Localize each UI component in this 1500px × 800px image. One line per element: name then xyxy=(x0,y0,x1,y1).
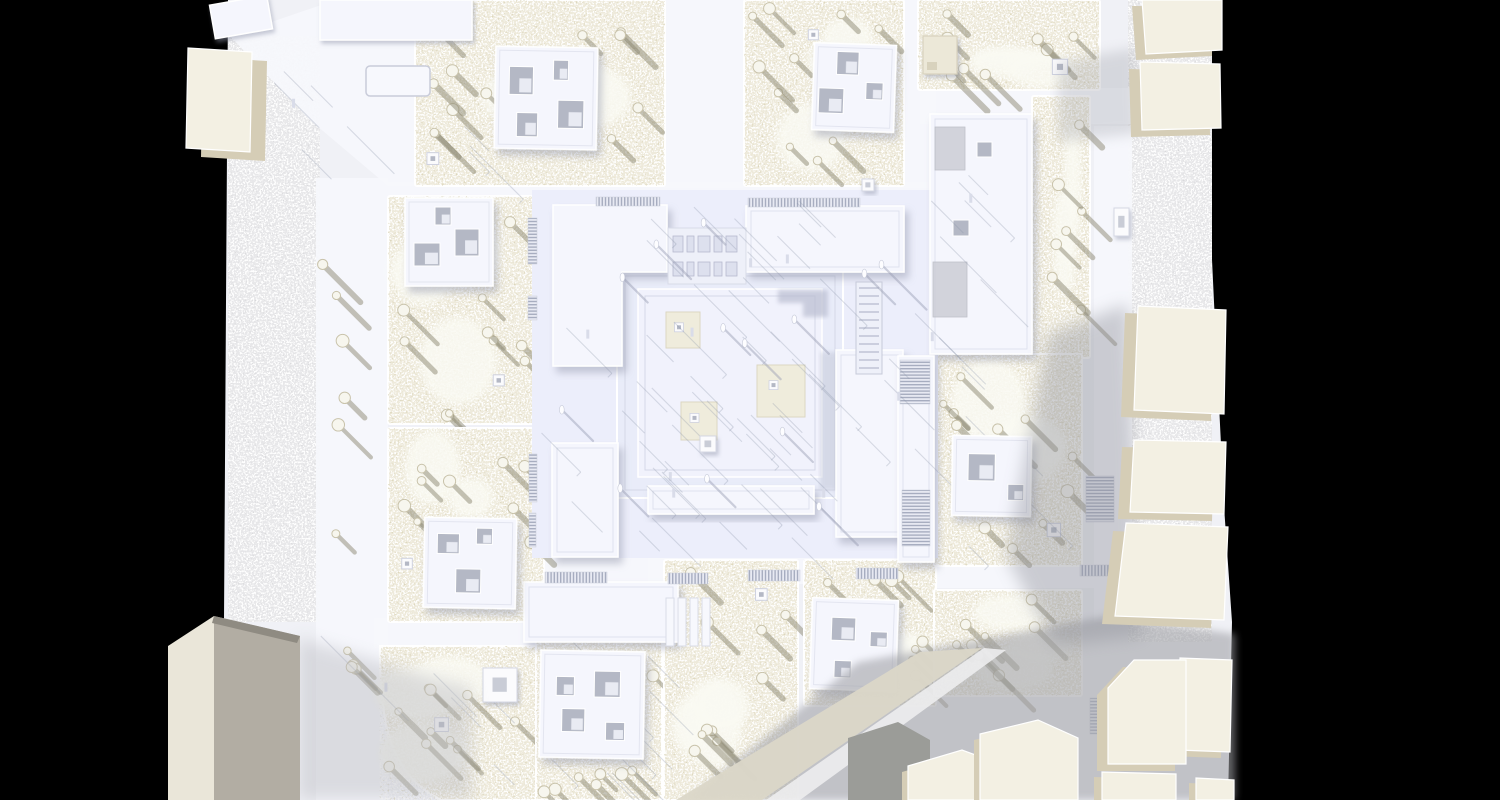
tree xyxy=(595,769,606,780)
courtyard-floor xyxy=(841,627,853,639)
tree xyxy=(478,294,486,302)
context-block xyxy=(1132,0,1222,60)
tree xyxy=(498,457,508,467)
tree xyxy=(618,484,623,493)
ridged-canopy xyxy=(856,568,898,579)
context-block xyxy=(1094,772,1176,800)
large-context-building xyxy=(168,616,300,800)
courtyard-floor xyxy=(519,78,531,92)
courtyard-floor xyxy=(525,123,536,135)
tree xyxy=(813,156,822,165)
bench xyxy=(969,194,972,203)
context-block xyxy=(974,720,1078,800)
courtyard-floor xyxy=(571,718,583,730)
tree xyxy=(705,474,710,483)
ridged-canopy xyxy=(668,573,708,584)
courtyard-floor xyxy=(873,90,882,99)
tree xyxy=(445,410,452,417)
bench xyxy=(822,489,825,498)
tree xyxy=(701,218,706,227)
block-top xyxy=(186,48,252,152)
roof-rooms xyxy=(668,228,746,284)
tree xyxy=(398,499,411,512)
courtyard-floor xyxy=(877,638,886,646)
pavilion-hole xyxy=(1118,216,1124,228)
tree xyxy=(417,464,426,473)
ridged-canopy xyxy=(596,197,660,206)
bench xyxy=(672,489,675,498)
ridged-canopy xyxy=(545,572,607,583)
tree xyxy=(620,273,625,282)
courtyard-floor xyxy=(425,253,438,265)
tree xyxy=(824,579,832,587)
courtyard-floor xyxy=(466,579,479,591)
context-block xyxy=(1121,306,1226,421)
tree xyxy=(482,327,493,338)
walkway-ladder xyxy=(856,282,882,374)
big-building-face xyxy=(168,616,214,800)
context-block xyxy=(186,48,267,161)
tree xyxy=(417,476,426,485)
tree xyxy=(1051,239,1062,250)
context-block xyxy=(1118,440,1226,521)
ridged-canopy xyxy=(748,570,800,581)
courtyard-floor xyxy=(465,240,477,254)
tree xyxy=(780,427,785,436)
pavilion-cube xyxy=(862,179,874,191)
tree xyxy=(414,518,421,525)
bench xyxy=(691,328,694,337)
building-slab xyxy=(930,114,1032,354)
tree xyxy=(764,3,776,15)
slab-roof xyxy=(836,350,903,537)
stair-bar xyxy=(690,598,698,646)
kiosk-roof-hole xyxy=(497,378,501,382)
tree xyxy=(336,334,349,347)
tree xyxy=(559,405,564,414)
room-cell xyxy=(673,236,683,252)
tree xyxy=(332,291,340,299)
rooftop-volume xyxy=(933,262,967,317)
tree xyxy=(654,240,659,249)
tree xyxy=(647,670,659,682)
rooftop-volume xyxy=(935,127,965,170)
tree xyxy=(591,779,601,789)
kiosk-roof-hole xyxy=(811,33,815,37)
courtyard-building xyxy=(423,517,517,609)
context-block xyxy=(1102,523,1228,628)
tree xyxy=(400,337,409,346)
kiosk-roof-hole xyxy=(759,592,764,597)
tree xyxy=(1032,34,1043,45)
tree xyxy=(508,503,519,514)
block-top xyxy=(1130,440,1226,514)
tree xyxy=(1069,32,1078,41)
tree xyxy=(781,610,790,619)
courtyard-floor xyxy=(605,682,618,695)
building-slab xyxy=(552,443,618,557)
tree xyxy=(917,636,928,647)
tree xyxy=(817,502,822,511)
room-cell xyxy=(714,262,722,276)
pavilion-cube xyxy=(1114,208,1129,236)
courtyard-floor xyxy=(560,69,568,79)
tree xyxy=(757,625,767,635)
tree xyxy=(721,323,726,332)
tree xyxy=(505,217,516,228)
room-cell xyxy=(698,262,710,276)
architectural-model-photo xyxy=(0,0,1500,800)
tree xyxy=(689,745,700,756)
model-svg xyxy=(0,0,1500,800)
pavilion-hole xyxy=(493,678,507,692)
scene-root xyxy=(0,0,1500,800)
tree xyxy=(958,63,968,73)
ridged-canopy xyxy=(900,360,930,404)
tree xyxy=(1062,227,1071,236)
context-block xyxy=(1189,778,1234,800)
tree xyxy=(332,530,340,538)
block-top xyxy=(1134,306,1226,414)
tree xyxy=(446,65,458,77)
block-top xyxy=(1115,523,1228,620)
stair-bar xyxy=(666,598,674,646)
tree xyxy=(757,672,769,684)
patch-cube-hole xyxy=(693,416,697,420)
tree xyxy=(837,10,846,19)
pavilion-cube xyxy=(483,668,517,702)
room-cell xyxy=(687,236,694,252)
cast-shadow-zone xyxy=(1058,48,1138,142)
building-roof xyxy=(494,46,598,150)
courtyard-floor xyxy=(483,535,491,543)
courtyard-floor xyxy=(979,465,993,479)
ridged-canopy xyxy=(528,218,537,264)
courtyard-hole xyxy=(977,142,992,157)
block-top xyxy=(1196,778,1234,800)
tree xyxy=(398,304,410,316)
courtyard-building xyxy=(539,650,645,759)
tree xyxy=(698,731,706,739)
tree xyxy=(875,25,883,33)
tree xyxy=(633,103,643,113)
block-top xyxy=(1140,62,1221,130)
courtyard-floor xyxy=(442,215,450,224)
tree xyxy=(1047,272,1057,282)
slab-roof xyxy=(524,582,678,642)
courtyard-floor xyxy=(829,99,842,112)
tree xyxy=(980,69,990,79)
road xyxy=(664,0,744,188)
tree xyxy=(516,340,527,351)
stair-bar xyxy=(678,598,686,646)
kiosk-roof-hole xyxy=(405,562,409,566)
tree xyxy=(510,717,519,726)
courtyard-building xyxy=(812,43,897,133)
tree xyxy=(829,137,837,145)
tree xyxy=(749,12,757,20)
context-block xyxy=(1129,62,1221,137)
courtyard-building xyxy=(494,46,598,150)
tree xyxy=(957,373,965,381)
worn-patch xyxy=(696,679,749,731)
tree xyxy=(574,773,583,782)
bench xyxy=(586,330,589,339)
bench xyxy=(897,392,900,401)
building-roof xyxy=(423,517,517,609)
pavilion-cube xyxy=(700,436,716,452)
tree xyxy=(615,30,626,41)
tree xyxy=(538,786,550,798)
roof-garden-patch xyxy=(757,365,805,417)
building-roof xyxy=(539,650,645,759)
big-building-top xyxy=(214,616,300,800)
pavement-marking xyxy=(366,66,430,96)
tree xyxy=(862,269,867,278)
beige-pavilion xyxy=(923,36,957,74)
courtyard-floor xyxy=(564,684,573,694)
tree xyxy=(430,128,439,137)
tree xyxy=(628,766,637,775)
courtyard-hole xyxy=(953,220,969,236)
tree xyxy=(786,143,793,150)
tree xyxy=(753,61,765,73)
courtyard-floor xyxy=(846,61,857,73)
pavilion-hole xyxy=(704,440,711,447)
kiosk-roof-hole xyxy=(430,156,435,161)
ridged-canopy xyxy=(902,490,930,546)
building-slab xyxy=(524,582,678,642)
tree xyxy=(318,259,328,269)
tree xyxy=(549,783,561,795)
tree xyxy=(1021,415,1029,423)
bench xyxy=(786,254,789,263)
beige-pavilion-notch xyxy=(927,62,937,70)
tree xyxy=(1052,179,1064,191)
patch-cube-hole xyxy=(772,383,776,387)
pavilion-hole xyxy=(865,182,870,187)
tree xyxy=(960,619,970,629)
tree xyxy=(332,419,344,431)
bench xyxy=(931,332,934,341)
courtyard-floor xyxy=(568,112,581,126)
tree xyxy=(940,400,947,407)
stair-bar xyxy=(702,598,710,646)
tree xyxy=(943,10,951,18)
room-cell xyxy=(726,262,737,276)
edge-building-roof xyxy=(320,0,472,40)
tree xyxy=(993,424,1003,434)
tree xyxy=(879,260,884,269)
block-top xyxy=(1102,772,1176,800)
ridged-canopy xyxy=(529,454,537,502)
ridged-canopy xyxy=(528,296,537,320)
slab-roof xyxy=(552,443,618,557)
courtyard-floor xyxy=(446,542,457,552)
tree xyxy=(790,54,799,63)
tree xyxy=(979,522,991,534)
edge-building xyxy=(320,0,472,40)
building-slab xyxy=(836,350,903,537)
block-top xyxy=(1142,0,1222,54)
block-top xyxy=(980,720,1078,800)
tree xyxy=(443,475,455,487)
tree xyxy=(339,392,350,403)
room-cell xyxy=(687,262,694,276)
bench xyxy=(292,99,295,108)
bench xyxy=(749,258,752,267)
block-top xyxy=(1108,660,1186,764)
tree xyxy=(607,134,616,143)
ridged-canopy xyxy=(529,513,536,547)
tree xyxy=(520,356,529,365)
tree xyxy=(481,88,492,99)
courtyard-floor xyxy=(613,730,623,739)
tree xyxy=(952,420,962,430)
tree xyxy=(578,31,587,40)
room-cell xyxy=(698,236,710,252)
tree xyxy=(792,315,797,324)
courtyard-building xyxy=(405,198,493,286)
